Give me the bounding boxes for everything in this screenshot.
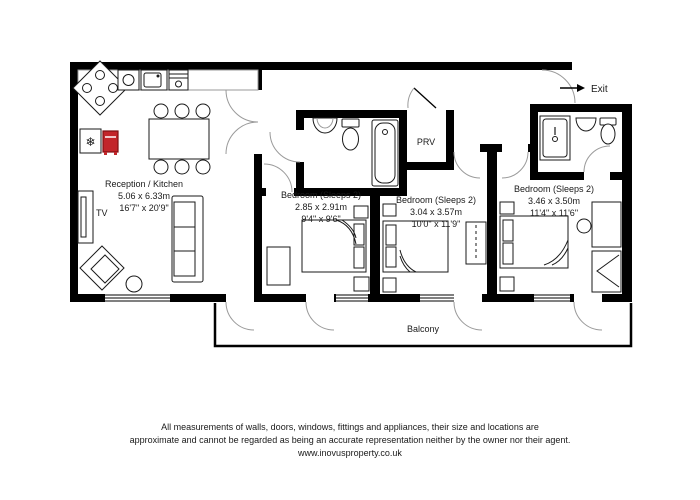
prv-label: PRV xyxy=(417,137,435,147)
wall-shower-top xyxy=(530,104,622,112)
bedroom1-door-arc xyxy=(264,164,292,192)
kitchen-balcony-door-arc xyxy=(226,302,254,330)
wall-prv-east xyxy=(446,110,454,170)
bedroom3-door-arc xyxy=(502,152,528,178)
dining-set xyxy=(149,104,210,174)
wall-bottom-5 xyxy=(368,294,420,302)
wall-bottom-2 xyxy=(170,294,226,302)
wall-bathroom-east xyxy=(399,110,407,196)
bed3-bedside-table xyxy=(500,277,514,291)
oven-icon xyxy=(118,70,139,90)
bedroom2-imperial: 10'0" x 11'9" xyxy=(412,219,461,229)
bed2-pillow xyxy=(386,247,396,267)
dining-table xyxy=(149,119,209,159)
reception-name: Reception / Kitchen xyxy=(105,179,183,189)
shower-room-fixtures xyxy=(540,116,616,160)
toilet-icon xyxy=(342,119,359,150)
armchair xyxy=(80,246,124,290)
bed1-pillow xyxy=(354,247,364,268)
bed3-desk xyxy=(592,202,621,247)
wall-bottom-6 xyxy=(482,294,534,302)
exit-label: Exit xyxy=(591,84,608,95)
bed1-bedside-table xyxy=(354,277,369,291)
bedroom1-balcony-door-arc xyxy=(306,302,334,330)
bed2-bedside-table xyxy=(383,204,396,216)
bedroom2-door-arc xyxy=(454,152,480,178)
bedroom2-furniture xyxy=(383,204,486,292)
sink-icon xyxy=(141,70,167,90)
shower-basin-icon xyxy=(576,118,596,131)
bed2-wardrobe xyxy=(466,222,486,264)
wall-left xyxy=(70,62,78,302)
wall-bottom-8 xyxy=(602,294,632,302)
bathroom-door-arc xyxy=(270,132,300,162)
bedroom1-imperial: 9'4" x 9'6" xyxy=(301,214,340,224)
bed2-pillow xyxy=(386,225,396,245)
dishwasher-icon xyxy=(169,70,188,90)
window-bedroom1 xyxy=(336,294,368,302)
bedroom3-imperial: 11'4" x 11'6" xyxy=(530,208,578,218)
wall-shower-bottom-b xyxy=(610,172,622,180)
fridge-icon: ❄ xyxy=(80,129,101,153)
window-bedroom2 xyxy=(420,294,454,302)
prv-door-leaf xyxy=(414,88,436,108)
bed3-pillow xyxy=(503,220,513,241)
balcony-label: Balcony xyxy=(407,324,440,334)
bathroom-fixtures xyxy=(313,118,398,186)
bedroom2-metric: 3.04 x 3.57m xyxy=(410,207,462,217)
wall-divider-bed2-bed3 xyxy=(487,152,497,302)
side-table xyxy=(126,276,142,292)
wall-shower-bottom-a xyxy=(530,172,584,180)
floorplan-drawing: ❄ xyxy=(0,0,700,500)
disclaimer-line1: All measurements of walls, doors, window… xyxy=(161,422,539,432)
shower-room-door-arc xyxy=(584,146,610,172)
wall-right xyxy=(622,104,632,302)
bedroom3-balcony-door-arc xyxy=(574,302,602,330)
window-bedroom3 xyxy=(534,294,570,302)
exit-arrow-head-icon xyxy=(577,84,585,92)
boiler-icon xyxy=(103,131,118,155)
bedroom1-metric: 2.85 x 2.91m xyxy=(295,202,347,212)
snowflake-icon: ❄ xyxy=(85,135,95,149)
wall-prv-bottom xyxy=(399,162,454,170)
tv-unit xyxy=(78,191,93,243)
prv-door-arc xyxy=(408,88,414,108)
wall-bottom-7 xyxy=(570,294,574,302)
basin-icon xyxy=(313,118,337,133)
bedroom3-name: Bedroom (Sleeps 2) xyxy=(514,184,594,194)
wall-bottom-3 xyxy=(254,294,306,302)
wall-hall-stub xyxy=(480,144,502,152)
bedroom3-metric: 3.46 x 3.50m xyxy=(528,196,580,206)
wall-bathroom-west-a xyxy=(296,110,304,130)
bed3-corner-wardrobe xyxy=(592,251,621,292)
wall-kitchen-east-b xyxy=(254,154,262,302)
wall-bottom-4 xyxy=(334,294,336,302)
bedroom2-name: Bedroom (Sleeps 2) xyxy=(396,195,476,205)
bed2-bedside-table xyxy=(383,278,396,292)
floorplan-page: ❄ xyxy=(0,0,700,500)
kitchen-furniture: ❄ xyxy=(73,61,258,292)
kitchen-double-door-arc-1 xyxy=(226,90,258,122)
wall-bottom-1 xyxy=(70,294,105,302)
sofa xyxy=(172,196,203,282)
window-kitchen xyxy=(105,294,170,302)
tv-label: TV xyxy=(96,208,108,218)
wall-divider-bed1-bed2 xyxy=(370,196,380,302)
reception-imperial: 16'7" x 20'9" xyxy=(119,203,168,213)
disclaimer-line2: approximate and cannot be regarded as be… xyxy=(130,435,571,445)
shower-toilet-icon xyxy=(600,118,616,144)
bathtub-icon xyxy=(372,120,398,186)
shower-icon xyxy=(540,116,570,160)
kitchen-double-door-arc-2 xyxy=(226,122,258,154)
entrance-door-arc xyxy=(542,70,575,103)
bed3-chair xyxy=(577,219,591,233)
bedroom1-name: Bedroom (Sleeps 2) xyxy=(281,190,361,200)
wall-shower-left xyxy=(530,112,538,180)
disclaimer: All measurements of walls, doors, window… xyxy=(130,422,571,458)
wall-top xyxy=(70,62,572,70)
bed3-bedside-table xyxy=(500,202,514,214)
website-url: www.inovusproperty.co.uk xyxy=(297,448,402,458)
wall-bed1-top-a xyxy=(262,188,266,196)
bedroom2-balcony-door-arc xyxy=(454,302,482,330)
bed1-bedside-table xyxy=(354,206,368,218)
bed1-cabinet xyxy=(267,247,290,285)
bed3-pillow xyxy=(503,243,513,264)
reception-metric: 5.06 x 6.33m xyxy=(118,191,170,201)
wall-bathroom-top xyxy=(296,110,407,118)
exit-indicator: Exit xyxy=(560,84,608,95)
